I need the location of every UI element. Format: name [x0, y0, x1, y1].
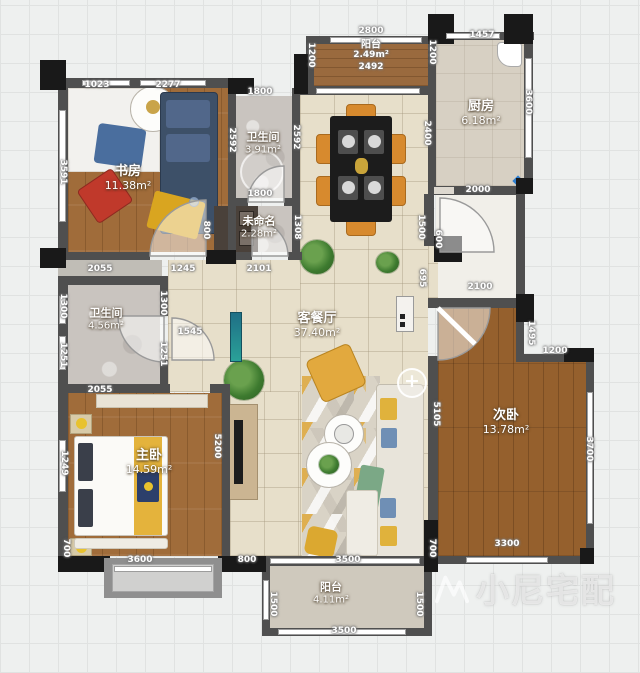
wall: [222, 384, 230, 572]
dim-label: 600: [433, 230, 443, 249]
dim-label: 5105: [431, 401, 441, 426]
dim-label: 1545: [177, 327, 202, 337]
study-cabinet: [214, 206, 228, 252]
pillow: [78, 489, 93, 527]
dim-label: 3600: [523, 89, 533, 114]
dim-label: 1500: [416, 214, 426, 239]
tray-decor: [144, 482, 153, 491]
dim-label: 2400: [422, 120, 432, 145]
bed-bench: [74, 538, 168, 549]
pillar: [58, 556, 110, 572]
dim-label: 1308: [292, 214, 302, 239]
plant: [376, 252, 399, 273]
tv: [234, 420, 243, 484]
second-floor-main: [438, 362, 586, 556]
dim-label: 1495: [526, 320, 536, 345]
pillar: [564, 348, 594, 362]
dim-label: 2492: [358, 62, 383, 72]
sofa-pillow: [380, 398, 397, 420]
dim-label: 2055: [87, 385, 112, 395]
sofa-pillow: [381, 428, 397, 448]
dim-label: 2277: [155, 80, 180, 90]
room-label-living: 客餐厅 37.40m²: [294, 307, 341, 339]
sofa-pillow: [380, 526, 397, 546]
dim-label: 1200: [542, 346, 567, 356]
entry-cabinet: [396, 296, 414, 332]
plant: [224, 360, 264, 400]
cabinet-knob: [400, 314, 405, 319]
centerpiece: [355, 158, 368, 174]
table-plant: [319, 455, 339, 474]
wall: [424, 566, 432, 634]
wall: [288, 252, 302, 260]
dim-label: 800: [201, 221, 211, 240]
sofa-pillow: [380, 498, 396, 518]
room-label-unnamed: 未命名 2.28m²: [241, 213, 277, 240]
drain-marker: [189, 197, 199, 207]
dim-label: 1500: [414, 591, 424, 616]
dim-label: 1200: [427, 39, 437, 64]
sofa-cushion: [166, 100, 210, 128]
bath-mid-floor: [68, 285, 160, 384]
dim-label: 1300: [58, 293, 68, 318]
pillar: [504, 14, 533, 44]
room-label-kitchen: 厨房 6.18m²: [461, 95, 501, 127]
room-label-balcony-bottom: 阳台 4.11m²: [313, 579, 349, 606]
wall: [58, 384, 170, 393]
dim-label: 2800: [358, 26, 383, 36]
dim-label: 3600: [127, 555, 152, 565]
pillar: [206, 250, 236, 264]
dim-label: 2101: [246, 264, 271, 274]
dim-label: 2592: [291, 124, 301, 149]
tv-console: [228, 404, 258, 500]
plant: [300, 240, 334, 274]
plate: [368, 135, 381, 148]
ottoman: [346, 490, 378, 556]
dim-label: 1457: [469, 30, 494, 40]
dim-label: 1023: [84, 80, 109, 90]
cabinet-knob: [400, 322, 405, 327]
dim-label: 1800: [247, 87, 272, 97]
shower-area: [240, 150, 284, 194]
dim-label: 700: [61, 539, 71, 558]
wall: [284, 198, 300, 206]
second-floor-upper: [438, 308, 516, 368]
lamp: [76, 418, 87, 429]
floorplan-canvas: 书房 11.38m² 卫生间 3.91m² 厨房 6.18m² 未命名 2.28…: [0, 0, 640, 673]
room-label-study: 书房 11.38m²: [105, 160, 152, 192]
room-label-bath-mid: 卫生间 4.56m²: [88, 305, 124, 332]
fish-tank: [230, 312, 242, 362]
wall: [516, 194, 525, 298]
room-area-balcony-top: 2.49m²: [353, 50, 389, 60]
dim-label: 1251: [58, 342, 68, 367]
wall: [58, 252, 150, 260]
dim-label: 800: [238, 555, 257, 565]
dim-label: 3500: [335, 555, 360, 565]
watermark: 小尼宅配: [433, 564, 616, 612]
room-label-second: 次卧 13.78m²: [483, 404, 530, 436]
dim-label: 1249: [59, 450, 69, 475]
wall: [228, 198, 248, 206]
window: [466, 557, 548, 563]
room-label-master: 主卧 14.59m²: [126, 444, 173, 476]
plate: [342, 135, 355, 148]
dim-label: 2100: [467, 282, 492, 292]
room-name-balcony-top: 阳台: [361, 36, 381, 51]
dim-label: 3700: [584, 436, 594, 461]
pillar: [516, 294, 534, 322]
dim-label: 1300: [158, 290, 168, 315]
pillar: [40, 248, 66, 268]
pillar: [40, 60, 66, 90]
table-decor: [146, 100, 160, 114]
dim-label: 2055: [87, 264, 112, 274]
sofa-cushion: [166, 134, 210, 162]
window: [114, 566, 212, 572]
dim-label: 3591: [58, 159, 68, 184]
pillar: [580, 548, 594, 564]
watermark-logo-icon: [433, 570, 471, 606]
dim-label: 695: [417, 269, 427, 288]
dim-label: 1800: [247, 189, 272, 199]
wall: [228, 88, 236, 256]
room-label-bath-top: 卫生间 3.91m²: [245, 129, 281, 156]
dim-label: 1200: [306, 42, 316, 67]
master-dresser: [96, 394, 208, 408]
wall: [428, 298, 524, 308]
pillar: [516, 178, 533, 194]
dim-label: 3300: [494, 539, 519, 549]
plate: [342, 181, 355, 194]
window: [316, 88, 420, 94]
zoom-in-button[interactable]: +: [397, 368, 427, 398]
table-tray: [334, 424, 354, 444]
wall: [210, 384, 222, 393]
dim-label: 2592: [227, 127, 237, 152]
watermark-text: 小尼宅配: [476, 564, 616, 612]
dim-label: 2000: [465, 185, 490, 195]
dim-label: 5200: [212, 433, 222, 458]
wall: [58, 276, 168, 285]
dim-label: 3500: [331, 626, 356, 636]
dim-label: 1251: [158, 341, 168, 366]
pouf: [303, 525, 338, 559]
dim-label: 1245: [170, 264, 195, 274]
dim-label: 700: [427, 539, 437, 558]
kitchen-sink: [497, 42, 522, 67]
pillow: [78, 443, 93, 481]
kitchen-door-opening: [434, 187, 454, 194]
dim-label: 1500: [268, 591, 278, 616]
plate: [368, 181, 381, 194]
